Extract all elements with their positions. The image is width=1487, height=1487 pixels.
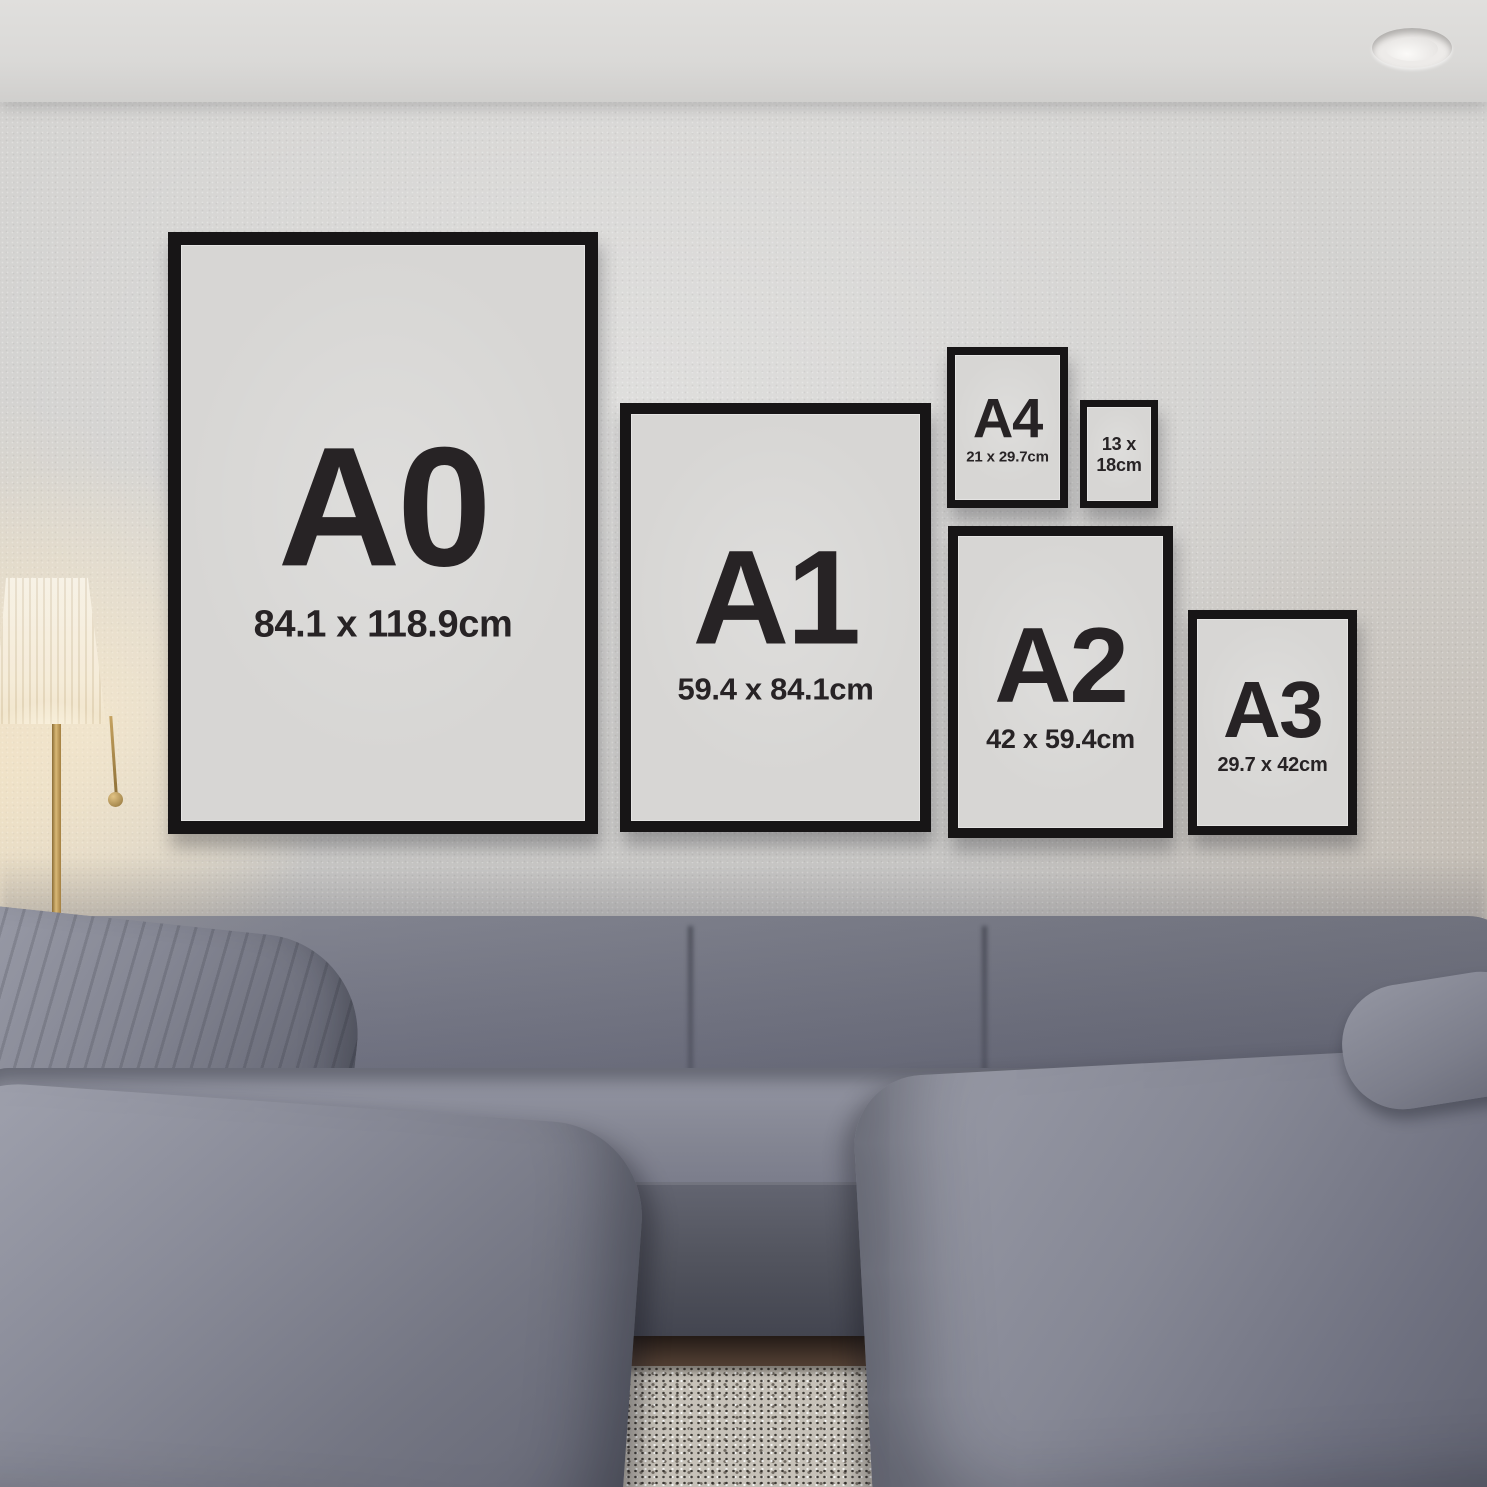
living-room-scene: A0 84.1 x 118.9cm A1 59.4 x 84.1cm A4 21…: [0, 0, 1487, 1487]
lamp-pull-chain-ball: [108, 792, 123, 807]
frame-a2-dimensions: 42 x 59.4cm: [986, 724, 1135, 755]
recessed-ceiling-light: [1372, 28, 1452, 68]
lamp-shade: [0, 578, 106, 724]
sofa-chaise-right: [851, 1042, 1487, 1487]
print-a2: A2 42 x 59.4cm: [958, 614, 1163, 755]
frame-a0-label: A0: [278, 428, 489, 590]
print-a1: A1 59.4 x 84.1cm: [631, 534, 920, 707]
frame-a2: A2 42 x 59.4cm: [948, 526, 1173, 838]
print-a0: A0 84.1 x 118.9cm: [181, 428, 585, 647]
frame-a3-dimensions: 29.7 x 42cm: [1217, 754, 1327, 777]
frame-a0-dimensions: 84.1 x 118.9cm: [254, 603, 513, 647]
frame-a4: A4 21 x 29.7cm: [947, 347, 1068, 508]
frame-a3-label: A3: [1223, 672, 1322, 748]
print-a3: A3 29.7 x 42cm: [1197, 672, 1348, 777]
frame-a1-dimensions: 59.4 x 84.1cm: [678, 672, 874, 708]
frame-a3: A3 29.7 x 42cm: [1188, 610, 1357, 835]
frame-13x18-line1: 13 x: [1102, 434, 1136, 455]
frame-a1: A1 59.4 x 84.1cm: [620, 403, 931, 832]
frame-a2-label: A2: [994, 614, 1127, 716]
frame-a4-label: A4: [973, 392, 1042, 445]
frame-a1-label: A1: [693, 534, 859, 661]
frame-13x18: 13 x 18cm: [1080, 400, 1158, 508]
sofa-chaise-left: [0, 1078, 648, 1487]
ceiling-light-core: [1386, 37, 1438, 61]
frame-a0: A0 84.1 x 118.9cm: [168, 232, 598, 834]
print-13x18: 13 x 18cm: [1087, 434, 1151, 475]
print-a4: A4 21 x 29.7cm: [955, 392, 1060, 466]
frame-13x18-line2: 18cm: [1096, 455, 1141, 476]
frame-a4-dimensions: 21 x 29.7cm: [966, 449, 1049, 466]
ceiling: [0, 0, 1487, 102]
